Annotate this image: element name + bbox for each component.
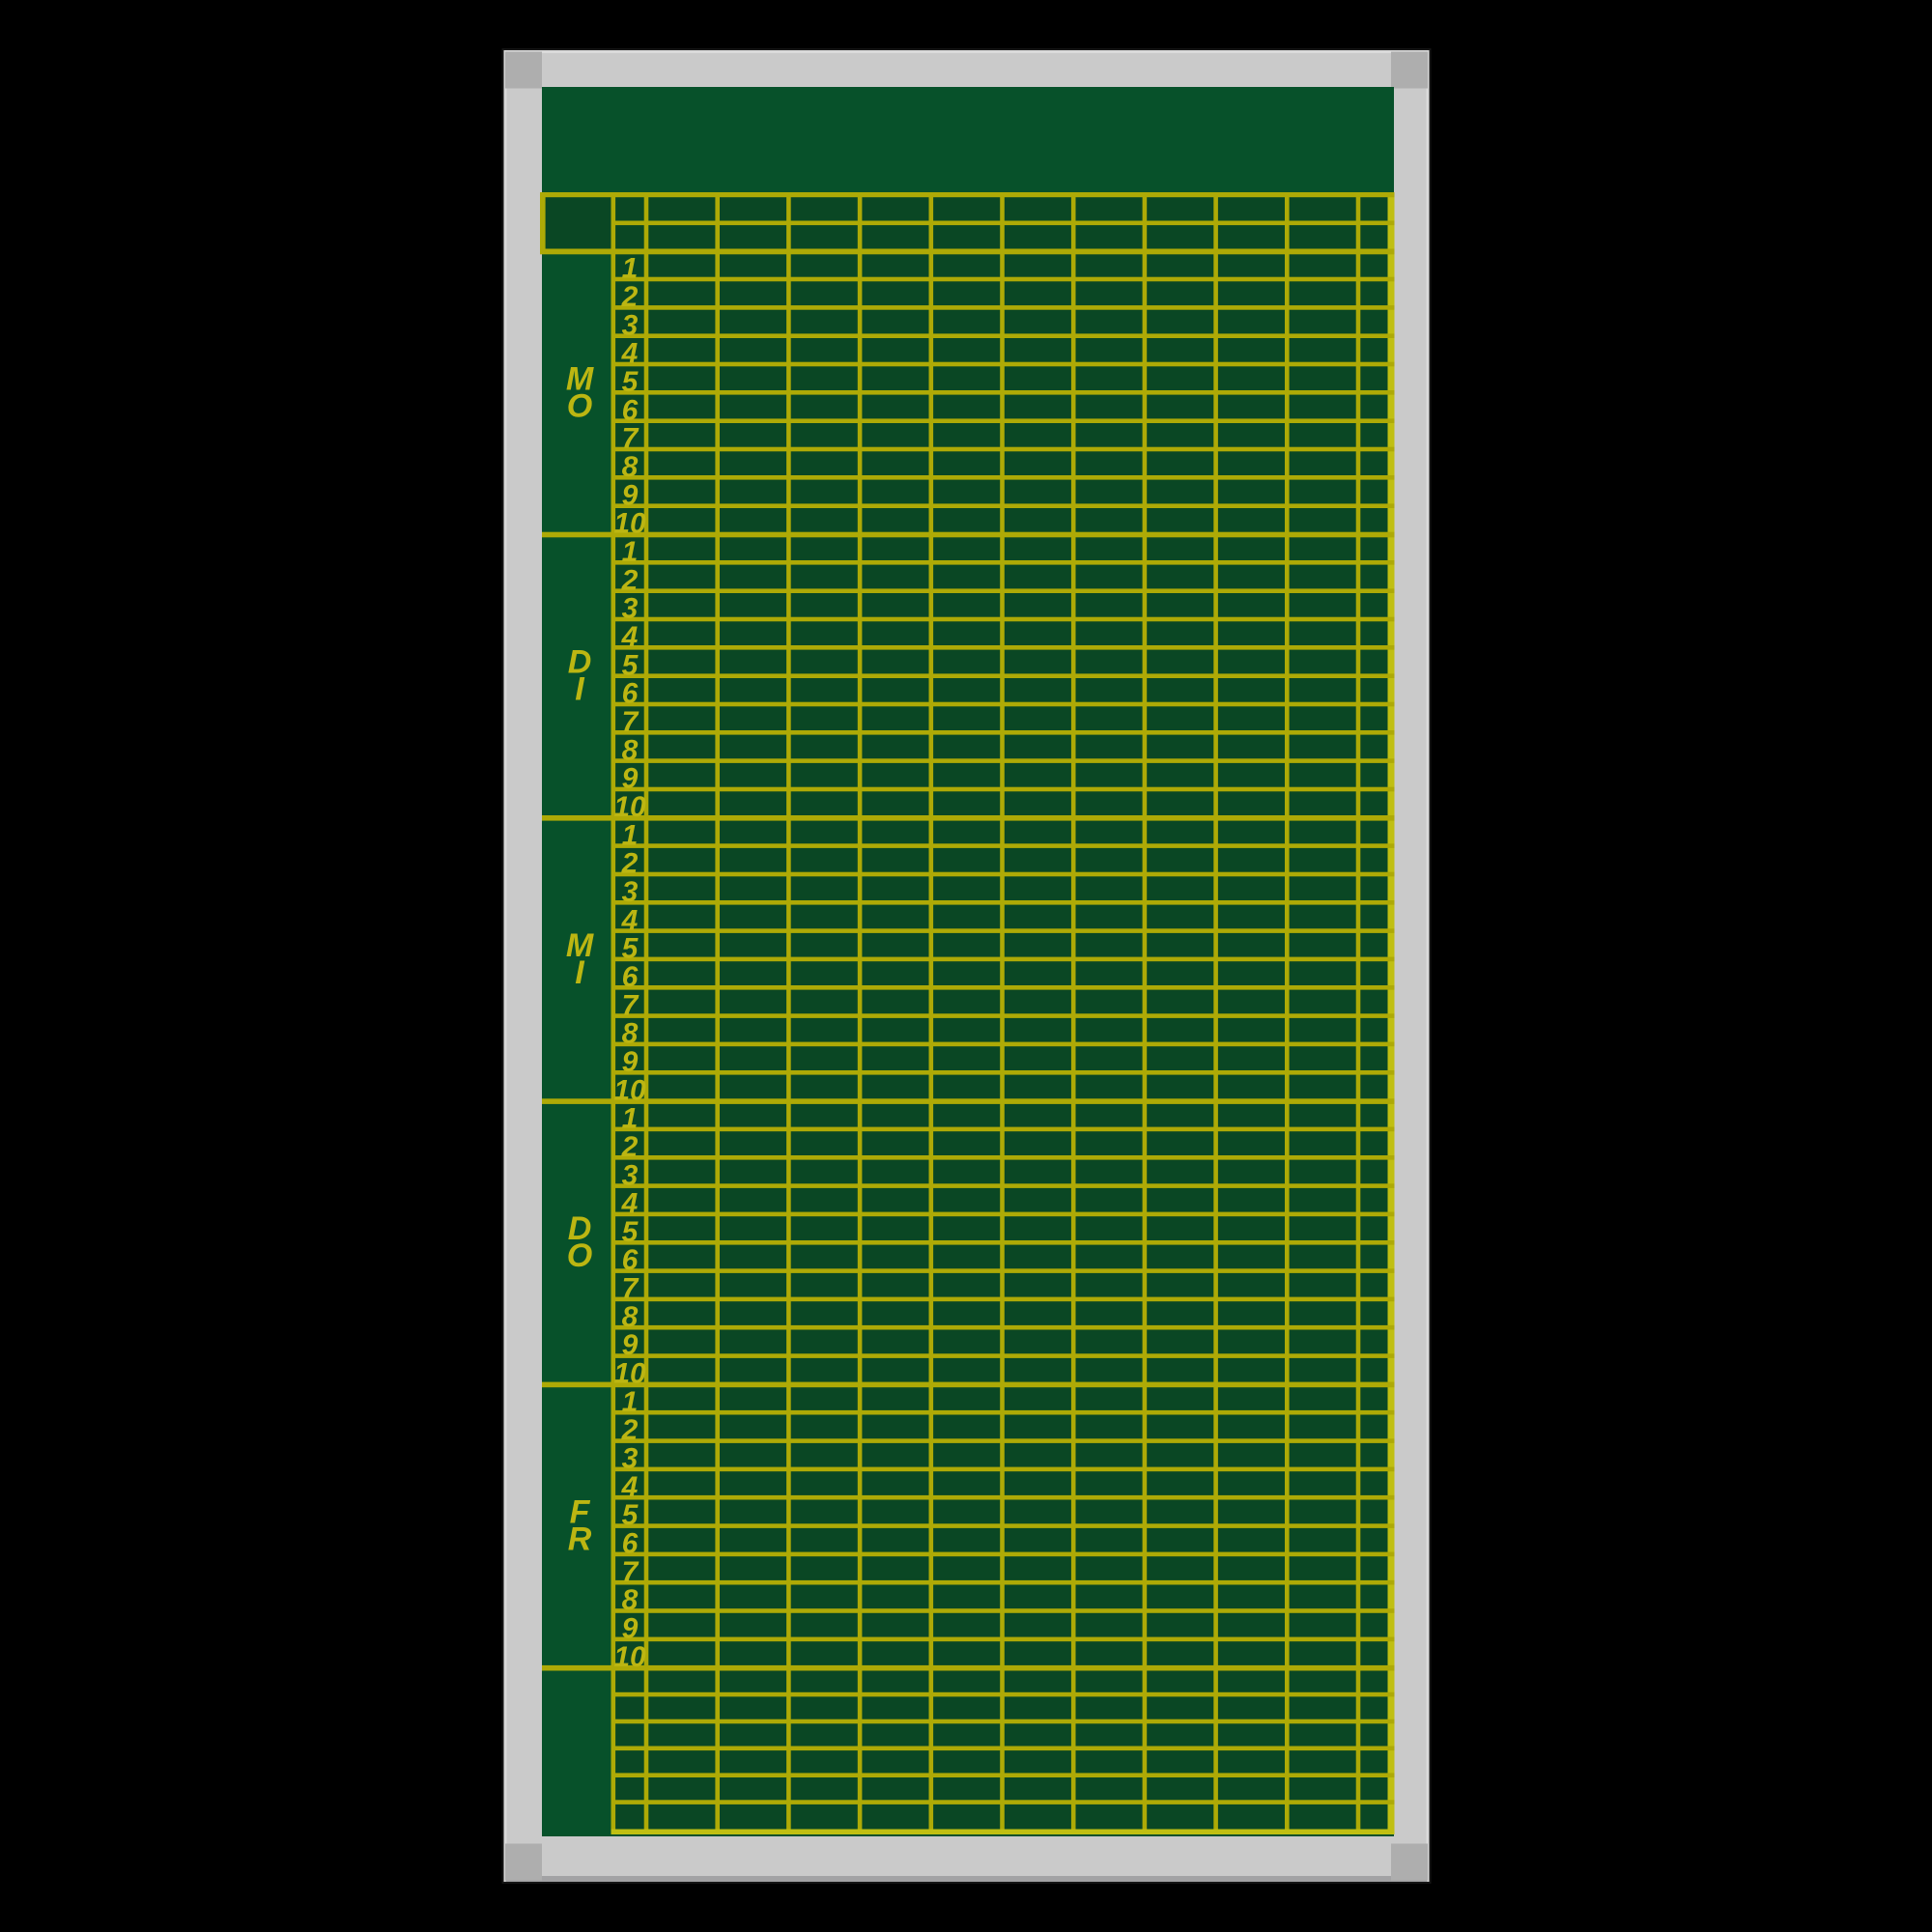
svg-text:3: 3 [622, 309, 639, 341]
svg-text:3: 3 [622, 876, 639, 908]
svg-text:5: 5 [622, 933, 639, 965]
svg-text:9: 9 [622, 1613, 639, 1645]
svg-text:7: 7 [622, 423, 639, 455]
svg-text:4: 4 [621, 1471, 639, 1503]
svg-text:6: 6 [622, 1244, 639, 1276]
svg-text:4: 4 [621, 338, 639, 370]
svg-text:9: 9 [622, 1046, 639, 1078]
svg-text:8: 8 [622, 451, 639, 483]
svg-text:1: 1 [622, 1386, 639, 1418]
svg-text:10: 10 [613, 1641, 646, 1673]
svg-text:10: 10 [613, 791, 646, 823]
svg-text:5: 5 [622, 366, 639, 398]
svg-text:7: 7 [622, 1273, 639, 1305]
svg-text:7: 7 [622, 1556, 639, 1588]
svg-text:6: 6 [622, 961, 639, 993]
svg-text:O: O [567, 1237, 592, 1274]
svg-text:9: 9 [622, 763, 639, 795]
svg-text:6: 6 [622, 394, 639, 426]
svg-text:1: 1 [622, 1103, 639, 1135]
svg-text:R: R [568, 1521, 592, 1558]
svg-text:4: 4 [621, 621, 639, 653]
svg-text:2: 2 [621, 848, 639, 880]
svg-text:10: 10 [613, 1074, 646, 1106]
svg-text:4: 4 [621, 1188, 639, 1220]
svg-text:O: O [567, 387, 592, 424]
svg-text:7: 7 [622, 706, 639, 738]
svg-text:8: 8 [622, 1584, 639, 1616]
svg-text:2: 2 [621, 1131, 639, 1163]
svg-text:8: 8 [622, 734, 639, 766]
svg-text:10: 10 [613, 508, 646, 540]
svg-text:I: I [575, 671, 585, 708]
svg-text:4: 4 [621, 904, 639, 936]
svg-text:5: 5 [622, 649, 639, 681]
svg-text:9: 9 [622, 1329, 639, 1361]
svg-text:I: I [575, 954, 585, 991]
svg-text:5: 5 [622, 1216, 639, 1248]
svg-text:3: 3 [622, 1443, 639, 1475]
svg-text:1: 1 [622, 253, 639, 285]
svg-text:2: 2 [621, 564, 639, 596]
svg-text:3: 3 [622, 1159, 639, 1191]
svg-text:1: 1 [622, 819, 639, 851]
svg-text:1: 1 [622, 536, 639, 568]
svg-text:2: 2 [621, 281, 639, 313]
svg-text:9: 9 [622, 479, 639, 511]
svg-text:3: 3 [622, 593, 639, 625]
svg-text:10: 10 [613, 1358, 646, 1390]
svg-text:5: 5 [622, 1499, 639, 1531]
svg-text:2: 2 [621, 1414, 639, 1446]
svg-text:6: 6 [622, 1528, 639, 1560]
svg-text:8: 8 [622, 1301, 639, 1333]
svg-text:6: 6 [622, 678, 639, 710]
svg-text:7: 7 [622, 989, 639, 1021]
svg-text:8: 8 [622, 1018, 639, 1050]
